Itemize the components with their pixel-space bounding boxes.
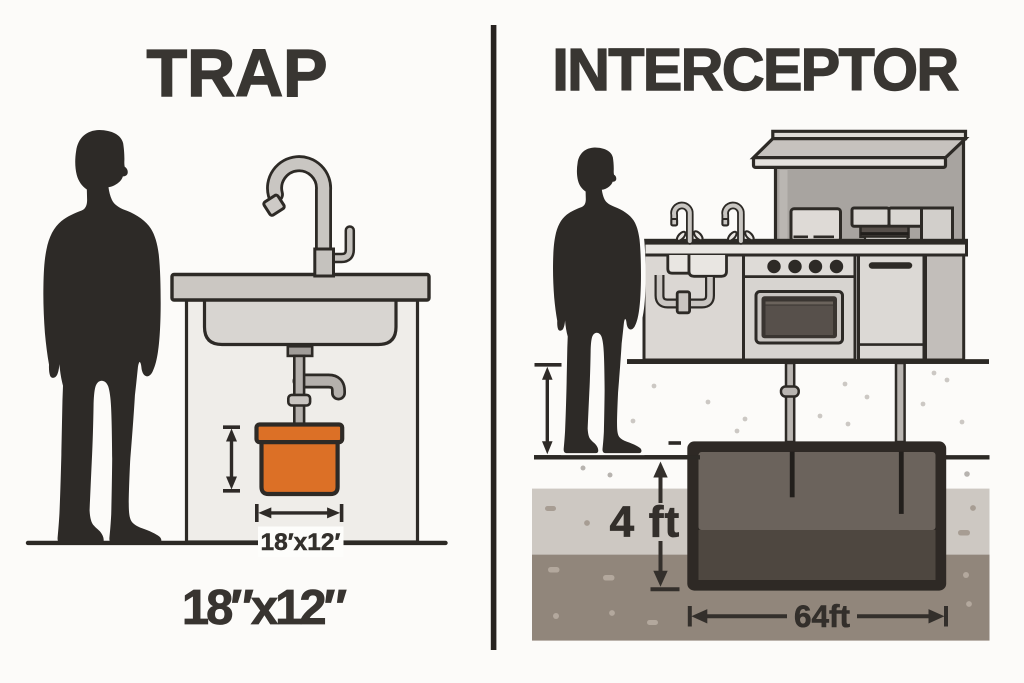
svg-text:18′x12′: 18′x12′ xyxy=(261,529,341,556)
svg-text:INTERCEPTOR: INTERCEPTOR xyxy=(552,37,958,103)
svg-text:4 ft: 4 ft xyxy=(610,498,681,547)
svg-text:TRAP: TRAP xyxy=(146,37,327,111)
svg-text:64ft: 64ft xyxy=(794,598,851,634)
svg-text:18″x12″: 18″x12″ xyxy=(182,581,347,635)
